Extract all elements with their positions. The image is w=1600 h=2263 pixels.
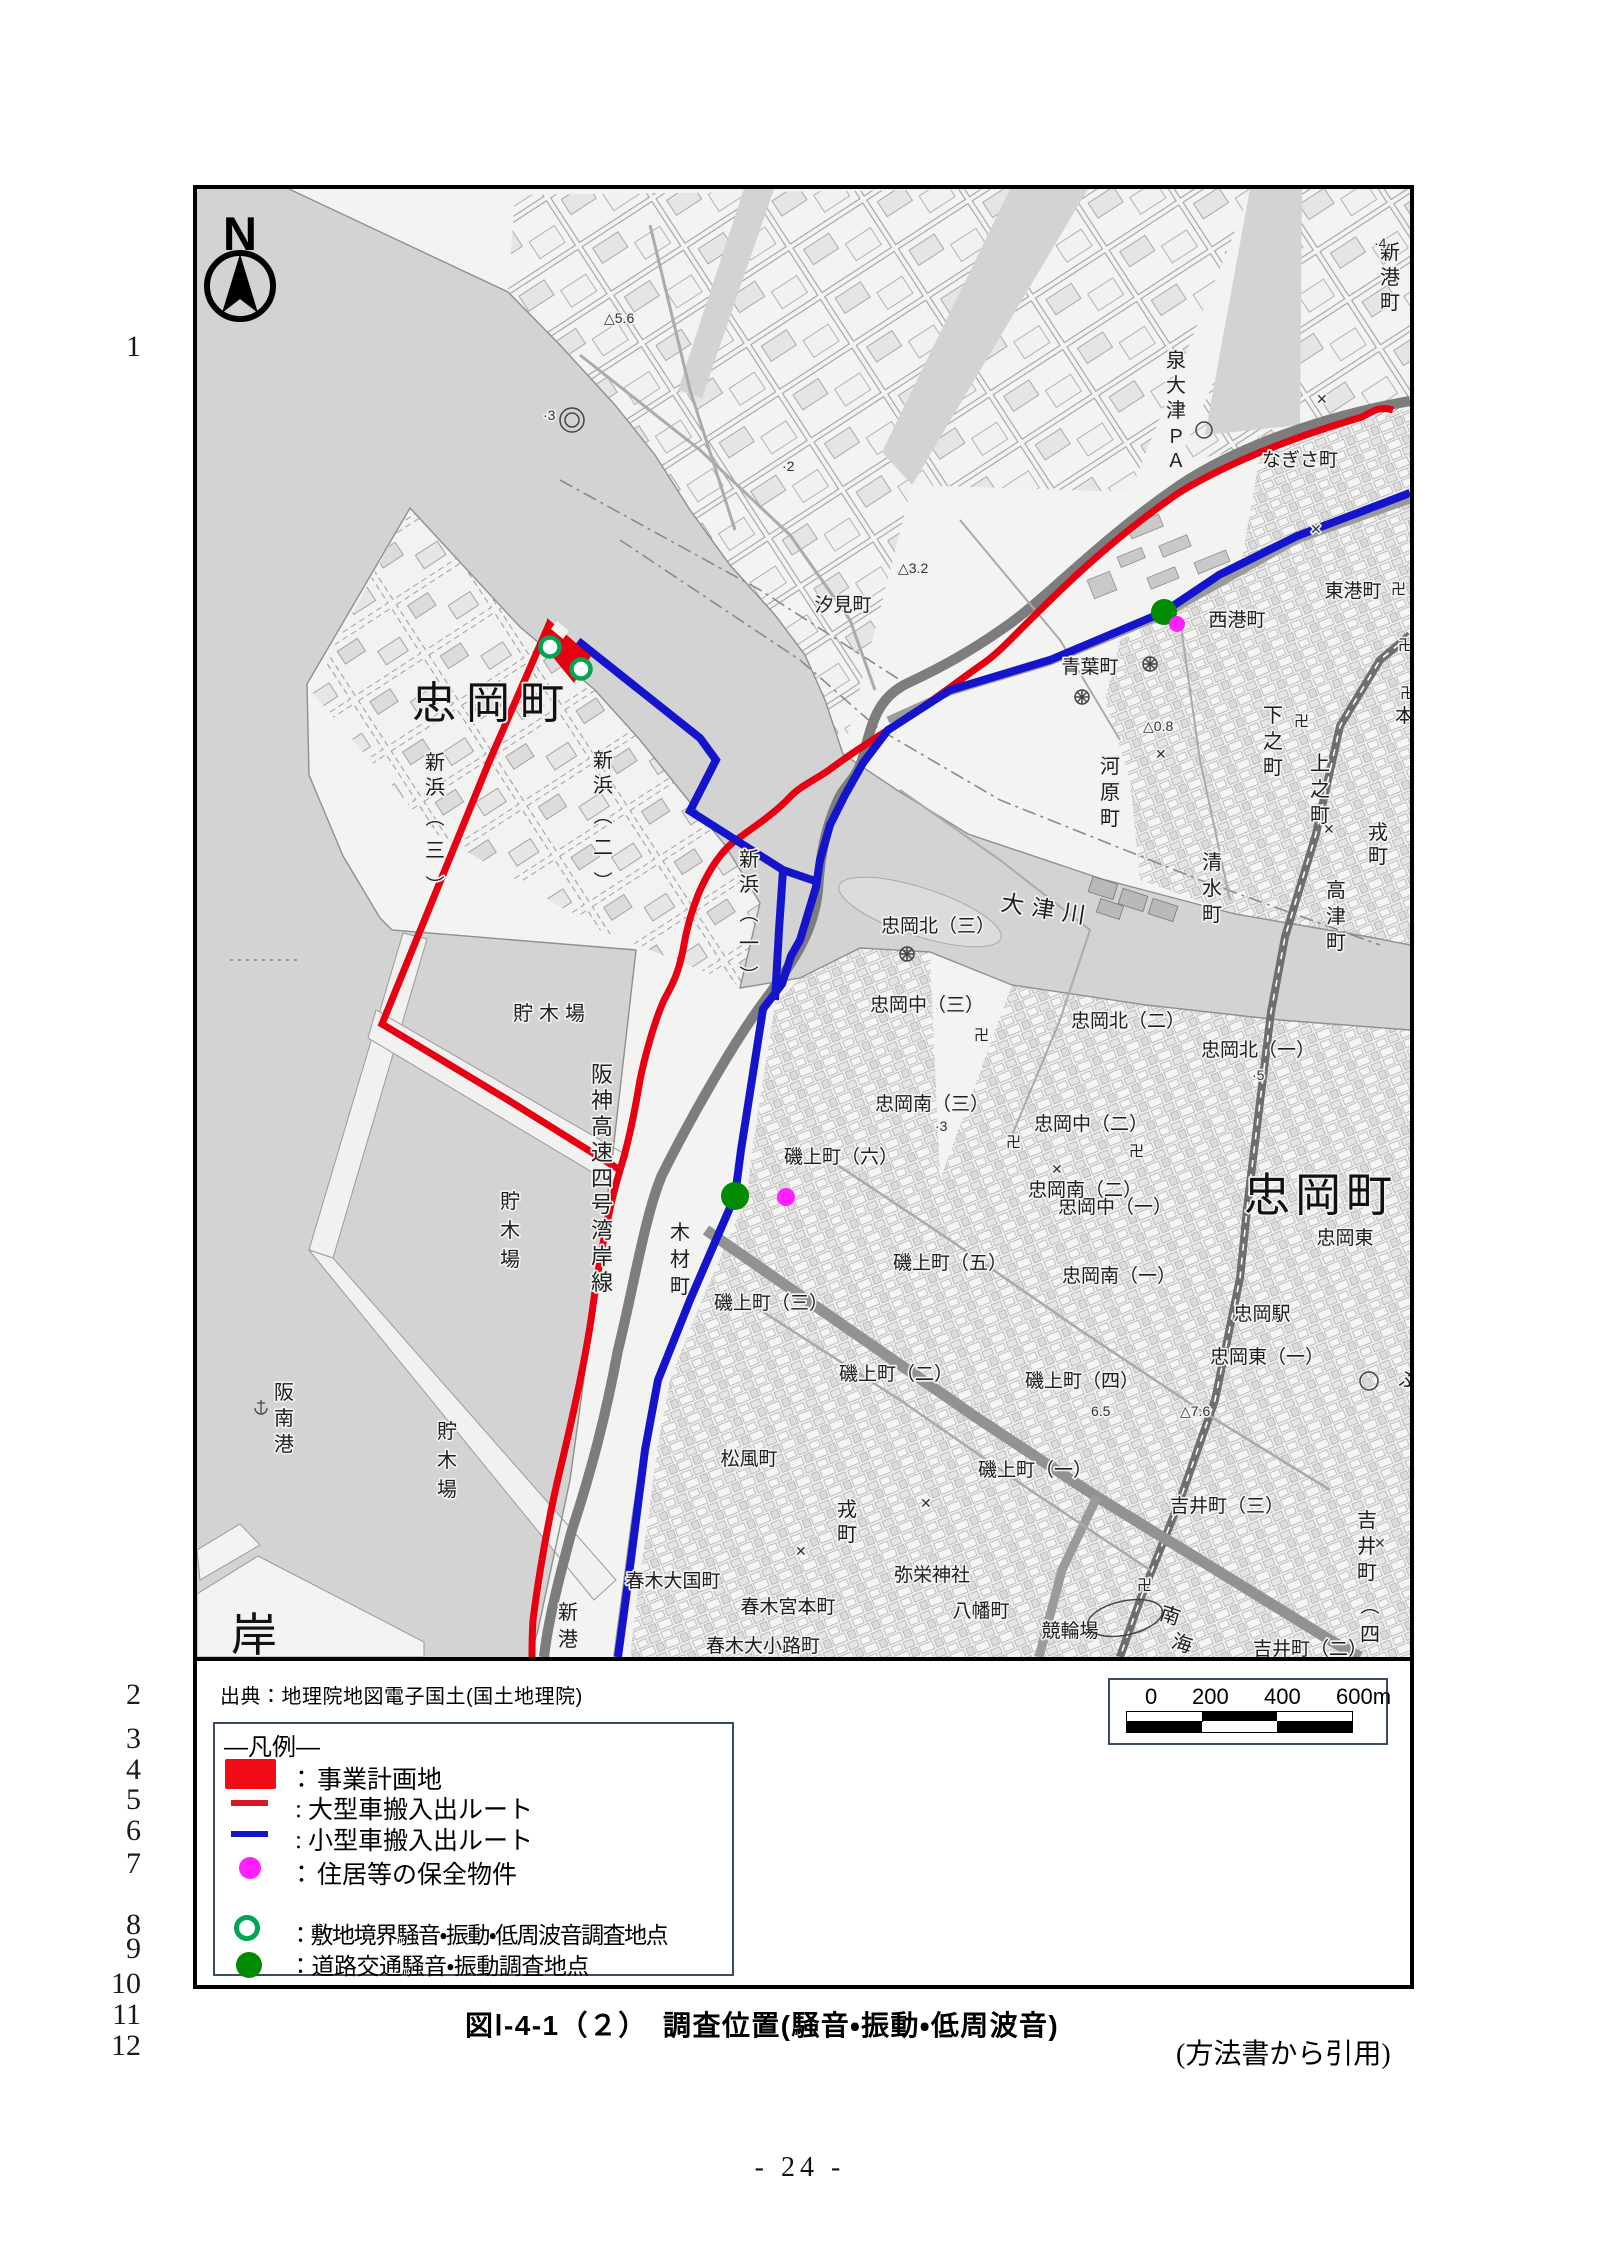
svg-text:✕: ✕ — [1310, 521, 1322, 537]
svg-text:✕: ✕ — [920, 1495, 932, 1511]
svg-text:水: 水 — [1202, 877, 1222, 900]
svg-text:浜: 浜 — [739, 873, 759, 896]
svg-text:︵: ︵ — [425, 808, 444, 829]
svg-text:磯上町（一）: 磯上町（一） — [978, 1459, 1092, 1481]
svg-text:卍: 卍 — [1398, 637, 1410, 654]
svg-text:木: 木 — [670, 1221, 690, 1244]
svg-text:6.5: 6.5 — [1091, 1403, 1111, 1419]
svg-text:戎: 戎 — [1368, 821, 1388, 844]
svg-text:岸: 岸 — [591, 1244, 613, 1269]
svg-text:速: 速 — [591, 1140, 613, 1165]
svg-text:町: 町 — [837, 1524, 857, 1546]
svg-text:津: 津 — [1166, 399, 1186, 422]
svg-text:ふれ: ふれ — [1398, 1370, 1410, 1391]
svg-text:大: 大 — [1166, 374, 1186, 397]
svg-text:磯上町（四）: 磯上町（四） — [1025, 1370, 1139, 1392]
svg-text:忠岡町: 忠岡町 — [1244, 1169, 1397, 1221]
svg-text:浜: 浜 — [593, 774, 613, 797]
svg-text:町: 町 — [1357, 1562, 1377, 1584]
svg-text:原: 原 — [1100, 782, 1120, 804]
svg-text:磯上町（六）: 磯上町（六） — [784, 1146, 898, 1168]
svg-text:春木大国町: 春木大国町 — [625, 1570, 720, 1592]
svg-text:材: 材 — [670, 1248, 690, 1271]
svg-text:町: 町 — [1368, 846, 1388, 868]
svg-text:港: 港 — [274, 1433, 294, 1456]
svg-text:線: 線 — [591, 1270, 613, 1295]
svg-text:△0.8: △0.8 — [1143, 718, 1173, 734]
svg-text:卍: 卍 — [1137, 1577, 1152, 1594]
svg-text:N: N — [223, 207, 257, 260]
svg-text:泉: 泉 — [1166, 349, 1186, 372]
svg-text:卍: 卍 — [1006, 1134, 1021, 1151]
svg-text:磯上町（三）: 磯上町（三） — [714, 1292, 828, 1314]
svg-text:△3.2: △3.2 — [898, 560, 928, 576]
svg-text:︶: ︶ — [593, 871, 612, 893]
svg-text:港: 港 — [558, 1628, 578, 1651]
svg-text:高: 高 — [1326, 879, 1346, 902]
svg-text:四: 四 — [591, 1166, 613, 1191]
svg-text:忠岡北（一）: 忠岡北（一） — [1201, 1039, 1315, 1061]
svg-text:下: 下 — [1263, 705, 1283, 727]
svg-text:八幡町: 八幡町 — [952, 1600, 1009, 1622]
svg-text:松風町: 松風町 — [720, 1448, 777, 1470]
svg-text:·5: ·5 — [1252, 1067, 1265, 1083]
svg-text:︵: ︵ — [1360, 1596, 1379, 1617]
svg-text:高: 高 — [591, 1114, 613, 1139]
svg-text:✕: ✕ — [1323, 821, 1335, 837]
svg-text:忠岡東（一）: 忠岡東（一） — [1210, 1346, 1324, 1368]
svg-text:貯: 貯 — [500, 1190, 520, 1213]
svg-text:木: 木 — [500, 1219, 520, 1242]
svg-text:木: 木 — [437, 1449, 457, 1472]
svg-text:新: 新 — [593, 749, 613, 772]
svg-text:なぎさ町: なぎさ町 — [1262, 449, 1338, 471]
svg-text:·2: ·2 — [782, 458, 795, 474]
svg-text:·4: ·4 — [1374, 235, 1387, 251]
svg-text:上: 上 — [1310, 752, 1330, 775]
svg-text:卍: 卍 — [1391, 581, 1406, 598]
svg-text:︶: ︶ — [739, 965, 758, 987]
svg-text:之: 之 — [1310, 778, 1330, 801]
svg-text:✕: ✕ — [1051, 1161, 1063, 1177]
svg-text:戎: 戎 — [837, 1498, 857, 1521]
svg-text:新: 新 — [558, 1601, 578, 1624]
svg-text:新: 新 — [425, 751, 445, 774]
svg-text:之: 之 — [1263, 730, 1283, 753]
svg-text:貯: 貯 — [437, 1420, 457, 1443]
svg-text:阪: 阪 — [591, 1062, 613, 1087]
svg-text:忠岡東: 忠岡東 — [1316, 1227, 1373, 1249]
svg-text:四: 四 — [1360, 1624, 1380, 1646]
svg-text:町: 町 — [1263, 757, 1283, 779]
svg-text:場: 場 — [500, 1248, 520, 1271]
svg-text:本町: 本町 — [1395, 705, 1410, 727]
svg-text:Ａ: Ａ — [1166, 451, 1185, 472]
svg-text:忠岡中（三）: 忠岡中（三） — [870, 994, 984, 1016]
svg-text:港: 港 — [1380, 266, 1400, 289]
svg-text:町: 町 — [670, 1276, 690, 1298]
svg-text:△5.6: △5.6 — [604, 310, 634, 326]
svg-text:忠岡中（二）: 忠岡中（二） — [1034, 1113, 1148, 1135]
svg-text:東港町: 東港町 — [1324, 580, 1381, 602]
svg-text:卍: 卍 — [974, 1027, 989, 1044]
svg-text:忠岡南（一）: 忠岡南（一） — [1062, 1265, 1176, 1287]
svg-text:︵: ︵ — [739, 904, 758, 925]
svg-text:湾: 湾 — [591, 1218, 613, 1243]
svg-text:浜: 浜 — [425, 776, 445, 799]
svg-text:Ｐ: Ｐ — [1166, 427, 1185, 448]
svg-text:貯木場: 貯木場 — [513, 1002, 591, 1025]
svg-text:吉井町（三）: 吉井町（三） — [1170, 1495, 1284, 1517]
svg-text:場: 場 — [437, 1478, 457, 1501]
svg-text:一: 一 — [739, 933, 759, 955]
svg-text:磯上町（五）: 磯上町（五） — [893, 1252, 1007, 1274]
svg-text:卍: 卍 — [1129, 1143, 1144, 1160]
svg-text:町: 町 — [1202, 904, 1222, 926]
svg-text:三: 三 — [425, 840, 445, 862]
svg-text:南: 南 — [274, 1407, 294, 1430]
svg-text:△7.6: △7.6 — [1180, 1403, 1210, 1419]
svg-text:新: 新 — [739, 848, 759, 871]
svg-text:卍: 卍 — [1400, 685, 1410, 702]
svg-text:河: 河 — [1100, 755, 1120, 778]
svg-text:吉: 吉 — [1357, 1509, 1377, 1532]
svg-text:忠岡北（三）: 忠岡北（三） — [881, 915, 995, 937]
svg-text:春木宮本町: 春木宮本町 — [740, 1596, 835, 1618]
svg-text:津: 津 — [1326, 905, 1346, 928]
svg-text:✕: ✕ — [1316, 391, 1328, 407]
svg-text:清: 清 — [1202, 851, 1222, 874]
svg-text:忠岡町: 忠岡町 — [412, 679, 574, 728]
svg-text:阪: 阪 — [274, 1381, 294, 1404]
svg-text:二: 二 — [593, 837, 613, 859]
svg-text:吉井町（二）: 吉井町（二） — [1253, 1638, 1367, 1657]
svg-text:号: 号 — [591, 1192, 613, 1217]
svg-text:町: 町 — [1380, 292, 1400, 314]
svg-text:町: 町 — [1100, 808, 1120, 830]
svg-text:春木大小路町: 春木大小路町 — [706, 1635, 820, 1657]
svg-text:弥栄神社: 弥栄神社 — [894, 1564, 970, 1586]
svg-text:汐見町: 汐見町 — [814, 594, 871, 616]
svg-text:卍: 卍 — [1294, 713, 1309, 730]
svg-text:町: 町 — [1326, 932, 1346, 954]
svg-text:忠岡南（二）: 忠岡南（二） — [1028, 1179, 1142, 1201]
svg-text:岸: 岸 — [231, 1609, 277, 1657]
svg-text:神: 神 — [591, 1088, 613, 1113]
svg-text:忠岡南（三）: 忠岡南（三） — [875, 1093, 989, 1115]
svg-text:忠岡北（二）: 忠岡北（二） — [1071, 1010, 1185, 1032]
svg-text:·3: ·3 — [543, 407, 556, 423]
svg-text:︶: ︶ — [425, 875, 444, 897]
svg-text:︵: ︵ — [593, 806, 612, 827]
svg-text:✕: ✕ — [1155, 746, 1167, 762]
svg-text:忠岡駅: 忠岡駅 — [1233, 1303, 1290, 1325]
svg-text:磯上町（二）: 磯上町（二） — [839, 1363, 953, 1385]
svg-text:·3: ·3 — [935, 1118, 948, 1134]
svg-text:青葉町: 青葉町 — [1061, 656, 1118, 678]
svg-text:✕: ✕ — [1374, 1535, 1386, 1551]
svg-text:西港町: 西港町 — [1208, 609, 1265, 631]
svg-text:✕: ✕ — [795, 1543, 807, 1559]
